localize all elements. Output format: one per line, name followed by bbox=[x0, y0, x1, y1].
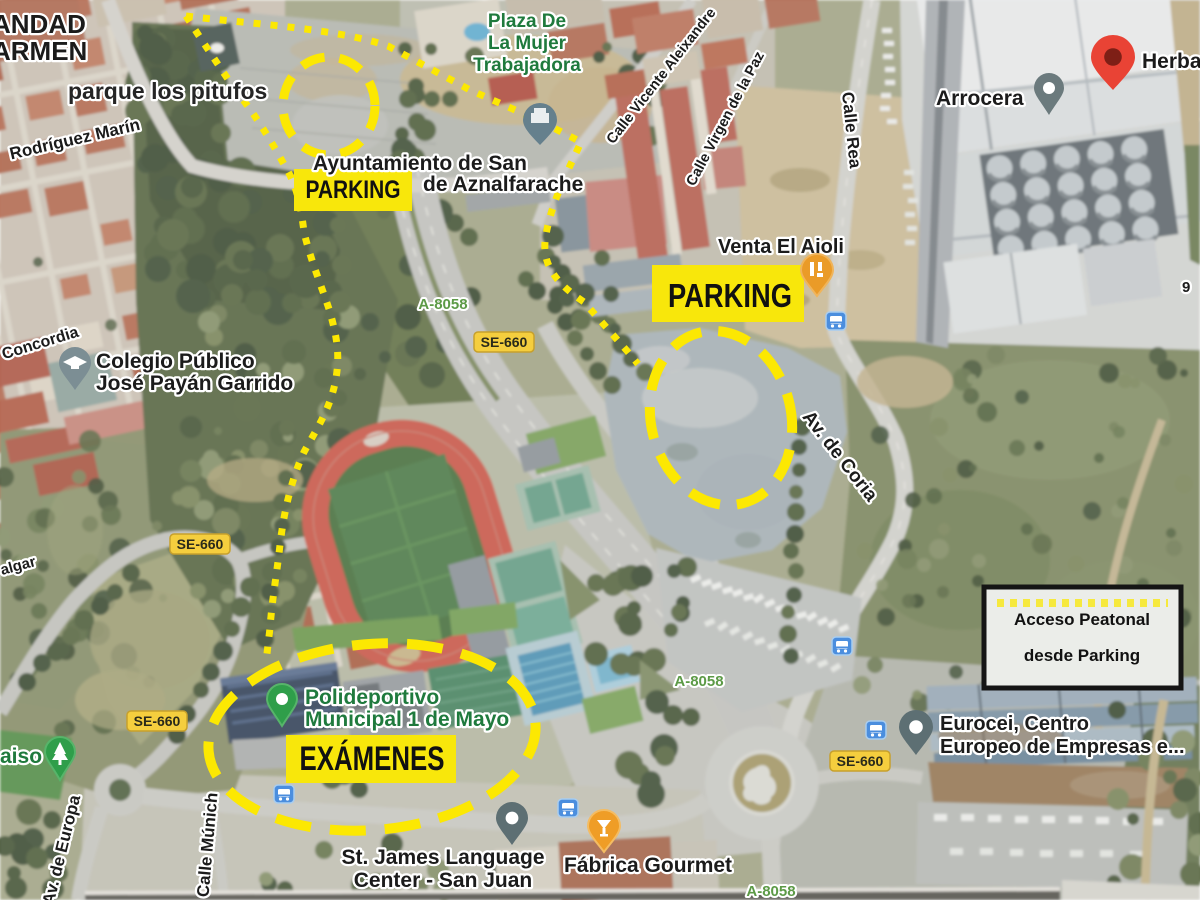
svg-text:Trabajadora: Trabajadora bbox=[473, 55, 581, 76]
svg-text:St. James Language: St. James Language bbox=[341, 846, 544, 869]
svg-text:José Payán Garrido: José Payán Garrido bbox=[96, 372, 293, 395]
svg-text:Colegio Público: Colegio Público bbox=[96, 350, 255, 373]
svg-text:parque los pitufos: parque los pitufos bbox=[68, 78, 267, 104]
svg-text:SE-660: SE-660 bbox=[134, 713, 181, 729]
svg-text:Center - San Juan: Center - San Juan bbox=[354, 869, 533, 892]
svg-text:Europeo de Empresas e...: Europeo de Empresas e... bbox=[940, 736, 1185, 758]
svg-text:SE-660: SE-660 bbox=[837, 753, 884, 769]
svg-text:A-8058: A-8058 bbox=[746, 883, 795, 900]
svg-text:Eurocei, Centro: Eurocei, Centro bbox=[940, 713, 1089, 735]
svg-text:EXÁMENES: EXÁMENES bbox=[300, 740, 445, 778]
svg-text:Arrocera: Arrocera bbox=[936, 87, 1024, 110]
svg-text:desde Parking: desde Parking bbox=[1024, 646, 1140, 665]
svg-text:SE-660: SE-660 bbox=[177, 536, 224, 552]
svg-text:La Mujer: La Mujer bbox=[488, 33, 567, 54]
svg-text:aiso: aiso bbox=[0, 745, 42, 768]
svg-text:PARKING: PARKING bbox=[668, 277, 792, 314]
svg-text:Herba: Herba bbox=[1142, 50, 1200, 73]
svg-text:Plaza De: Plaza De bbox=[488, 11, 566, 32]
svg-text:Acceso Peatonal: Acceso Peatonal bbox=[1014, 610, 1150, 629]
svg-text:Fábrica Gourmet: Fábrica Gourmet bbox=[564, 854, 732, 877]
svg-text:A-8058: A-8058 bbox=[418, 296, 467, 313]
svg-text:Municipal 1 de Mayo: Municipal 1 de Mayo bbox=[305, 708, 509, 731]
svg-text:ANDAD: ANDAD bbox=[0, 9, 86, 39]
svg-text:A-8058: A-8058 bbox=[674, 673, 723, 690]
svg-text:9: 9 bbox=[1182, 279, 1190, 296]
svg-text:ARMEN: ARMEN bbox=[0, 36, 87, 66]
svg-text:Ayuntamiento de San: Ayuntamiento de San bbox=[313, 152, 527, 175]
svg-text:Polideportivo: Polideportivo bbox=[305, 686, 439, 709]
svg-text:SE-660: SE-660 bbox=[481, 334, 528, 350]
svg-text:Venta El Ajoli: Venta El Ajoli bbox=[718, 236, 844, 258]
svg-text:PARKING: PARKING bbox=[306, 176, 401, 204]
svg-text:de Aznalfarache: de Aznalfarache bbox=[423, 173, 583, 196]
